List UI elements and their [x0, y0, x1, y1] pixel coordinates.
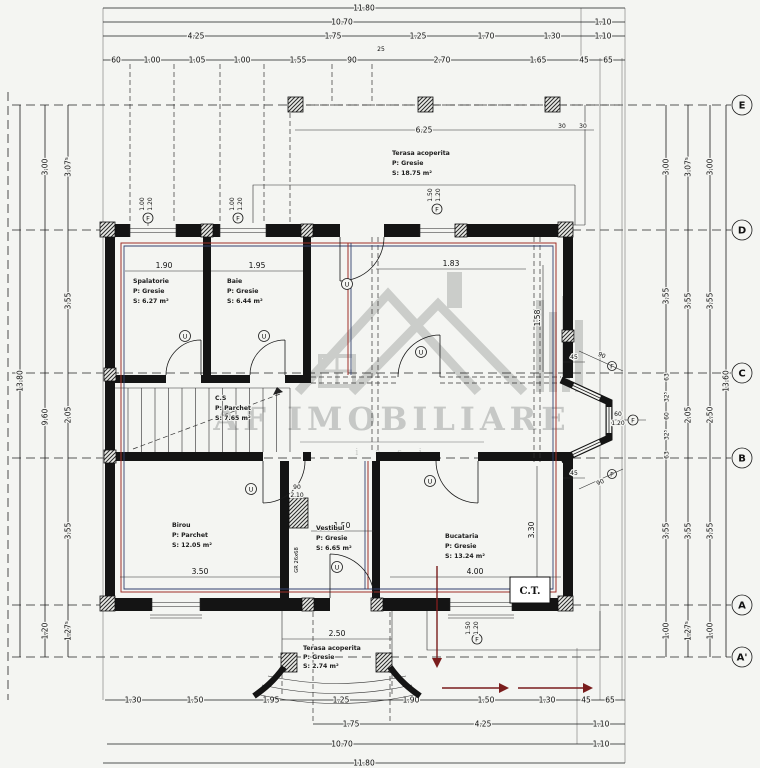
dim-label: 1.00	[234, 56, 251, 65]
dim-label: 4.25	[188, 32, 205, 41]
dim-label: 2.10	[290, 492, 304, 499]
dim-label: 45	[570, 470, 578, 477]
window-dim: 1.20	[473, 621, 480, 635]
dim-label: 1.30	[125, 696, 142, 705]
dim-label: 1.95	[249, 261, 266, 270]
door-symbol: U	[335, 564, 340, 572]
floor-plan-page: AF IMOBILIARE i a s i	[0, 0, 760, 768]
grid-bubble-d: D	[738, 226, 746, 237]
door-symbol: U	[249, 486, 254, 494]
dim-label: 90	[347, 56, 357, 65]
dim-label: 2.05	[64, 406, 73, 423]
dim-label: 11.80	[353, 4, 375, 13]
room-label-cs: C.S	[215, 395, 226, 402]
dim-label: 1.50	[187, 696, 204, 705]
dim-label: 1.27⁵	[64, 621, 73, 641]
grid-bubble-c: C	[738, 369, 745, 380]
dim-label: 1.70	[478, 32, 495, 41]
room-floor: P: Gresie	[227, 288, 259, 295]
door-symbol: U	[428, 478, 433, 486]
room-label-spalatorie: Spalatorie	[133, 278, 169, 285]
room-floor: P: Gresie	[445, 543, 477, 550]
bottom-dimensions: 1.30 1.50 1.95 1.25 1.90 1.50 1.30 45 65…	[100, 696, 629, 768]
dim-label: 1.95	[263, 696, 280, 705]
dim-label: 10.70	[331, 740, 353, 749]
door-symbol: U	[183, 333, 188, 341]
entry-landing	[427, 611, 600, 650]
dim-label: 1.30	[539, 696, 556, 705]
dim-label: 45	[579, 56, 589, 65]
room-floor: P: Parchet	[215, 405, 251, 412]
dim-label: 1.25	[410, 32, 427, 41]
room-label-terasa-top: Terasa acoperita	[392, 150, 450, 157]
grid-bubble-a: A	[738, 601, 746, 612]
dim-label: 2.05	[684, 406, 693, 423]
dim-label: 1.20	[611, 420, 625, 427]
right-dimensions: 3.00 3.55 63 32⁵ 60 32⁵ 63 3.55 1.00 3.0…	[662, 102, 731, 661]
room-label-vestibul: Vestibul	[316, 525, 344, 532]
dim-label: 2.70	[434, 56, 451, 65]
dim-label: 60	[664, 412, 671, 420]
dim-label: 1.55	[290, 56, 307, 65]
room-floor: P: Gresie	[392, 160, 424, 167]
dim-label: 3.55	[64, 522, 73, 539]
room-label-baie: Baie	[227, 278, 242, 285]
dim-label: GR 26x68	[294, 547, 300, 573]
dim-label: 3.55	[64, 292, 73, 309]
dim-label: 1.90	[156, 261, 173, 270]
dim-label: 3.00	[41, 158, 50, 175]
grid-bubble-a2: A'	[737, 653, 748, 664]
dim-label: 3.55	[706, 522, 715, 539]
dim-label: 13.60	[722, 370, 731, 392]
dim-label: 90	[293, 484, 301, 491]
dim-label: 3.00	[662, 158, 671, 175]
dim-label: 32⁵	[664, 429, 671, 440]
room-area: S: 18.75 m²	[392, 170, 432, 177]
grid-bubbles: E D C B A A'	[732, 95, 752, 667]
dim-label: 3.55	[662, 287, 671, 304]
room-label-terasa-bottom: Terasa acoperita	[303, 645, 361, 652]
window-dim: 1.20	[147, 197, 154, 211]
dim-label: 90	[597, 351, 607, 361]
room-area: S: 12.05 m²	[172, 542, 212, 549]
dim-label: 13.80	[16, 370, 25, 392]
dim-label: 1.10	[595, 32, 612, 41]
dim-label: 1.00	[144, 56, 161, 65]
dim-label: 63	[664, 451, 671, 459]
dim-label: 1.75	[343, 720, 360, 729]
grid-bubble-b: B	[738, 454, 746, 465]
dim-label: 4.25	[475, 720, 492, 729]
window-dim: 1.50	[465, 621, 472, 635]
dim-label: 3.00	[706, 158, 715, 175]
door-symbol: U	[419, 349, 424, 357]
room-floor: P: Gresie	[303, 654, 335, 661]
dim-label: 4.00	[467, 567, 484, 576]
room-area: S: 6.65 m²	[316, 545, 352, 552]
dim-label: 63	[664, 373, 671, 381]
dim-label: 11.80	[353, 759, 375, 768]
window-dim: 1.00	[229, 197, 236, 211]
dim-label: 1.05	[189, 56, 206, 65]
dim-label: 1.27⁵	[684, 621, 693, 641]
room-floor: P: Gresie	[316, 535, 348, 542]
dim-label: 60	[111, 56, 121, 65]
window-dim: 1.00	[139, 197, 146, 211]
top-dimensions: 11.80 10.70 1.10 4.25 1.75 1.25 1.70 1.3…	[100, 4, 629, 65]
dim-label: 3.07⁵	[64, 157, 73, 177]
window-symbol: F	[236, 215, 240, 223]
dim-label: 90	[595, 478, 605, 488]
window-dim: 1.50	[427, 188, 434, 202]
dim-label: 60	[614, 411, 622, 418]
dim-label: 3.50	[192, 567, 209, 576]
room-area: S: 7.65 m²	[215, 415, 251, 422]
door-symbol: U	[345, 281, 350, 289]
window-symbol: F	[475, 636, 479, 644]
dim-label: 9.60	[41, 408, 50, 425]
room-area: S: 6.44 m²	[227, 298, 263, 305]
dim-label: 3.55	[684, 522, 693, 539]
dim-label: 32⁵	[664, 391, 671, 402]
room-floor: P: Gresie	[133, 288, 165, 295]
dim-label: 1.30	[544, 32, 561, 41]
grid-bubble-e: E	[739, 101, 746, 112]
dim-label: 25	[377, 46, 385, 53]
dim-label: 1.50	[478, 696, 495, 705]
room-floor: P: Parchet	[172, 532, 208, 539]
dim-label: 1.58	[533, 309, 542, 326]
dim-label: 1.10	[595, 18, 612, 27]
dim-label: 3.55	[684, 292, 693, 309]
dim-label: 30	[558, 123, 566, 130]
dim-label: 1.10	[593, 740, 610, 749]
floor-plan: AF IMOBILIARE i a s i	[0, 0, 760, 768]
watermark-title: AF IMOBILIARE	[212, 400, 570, 438]
dim-label: 3.55	[706, 292, 715, 309]
dim-label: 45	[581, 696, 591, 705]
room-label-bucataria: Bucataria	[445, 533, 478, 540]
room-area: S: 2.74 m²	[303, 663, 339, 670]
dim-label: 1.00	[662, 622, 671, 639]
dim-label: 2.50	[706, 406, 715, 423]
dim-label: 1.75	[325, 32, 342, 41]
dim-label: 3.07⁵	[684, 157, 693, 177]
dim-label: 65	[603, 56, 613, 65]
dim-label: 1.65	[530, 56, 547, 65]
room-area: S: 13.24 m²	[445, 553, 485, 560]
dim-label: 1.00	[706, 622, 715, 639]
dim-label: 45	[570, 354, 578, 361]
dim-label: 6.25	[416, 126, 433, 135]
room-area: S: 6.27 m²	[133, 298, 169, 305]
window-symbol: F	[631, 417, 635, 425]
dim-label: 1.83	[443, 259, 460, 268]
boiler-label: C.T.	[520, 586, 541, 597]
dim-label: 10.70	[331, 18, 353, 27]
door-symbol: U	[262, 333, 267, 341]
left-dimensions: 13.80 3.00 9.60 1.20 3.07⁵ 3.55 2.05 3.5…	[16, 102, 73, 661]
dim-label: 1.20	[41, 622, 50, 639]
dim-label: 65	[605, 696, 615, 705]
window-symbol: F	[435, 206, 439, 214]
dim-label: 30	[579, 123, 587, 130]
window-dim: 1.20	[435, 188, 442, 202]
dim-label: 3.30	[527, 521, 536, 538]
room-label-birou: Birou	[172, 522, 191, 529]
watermark: AF IMOBILIARE i a s i	[212, 272, 583, 458]
window-dim: 1.20	[237, 197, 244, 211]
window-symbol: F	[146, 215, 150, 223]
dim-label: 1.10	[593, 720, 610, 729]
dim-label: 2.50	[329, 629, 346, 638]
dim-label: 3.55	[662, 522, 671, 539]
